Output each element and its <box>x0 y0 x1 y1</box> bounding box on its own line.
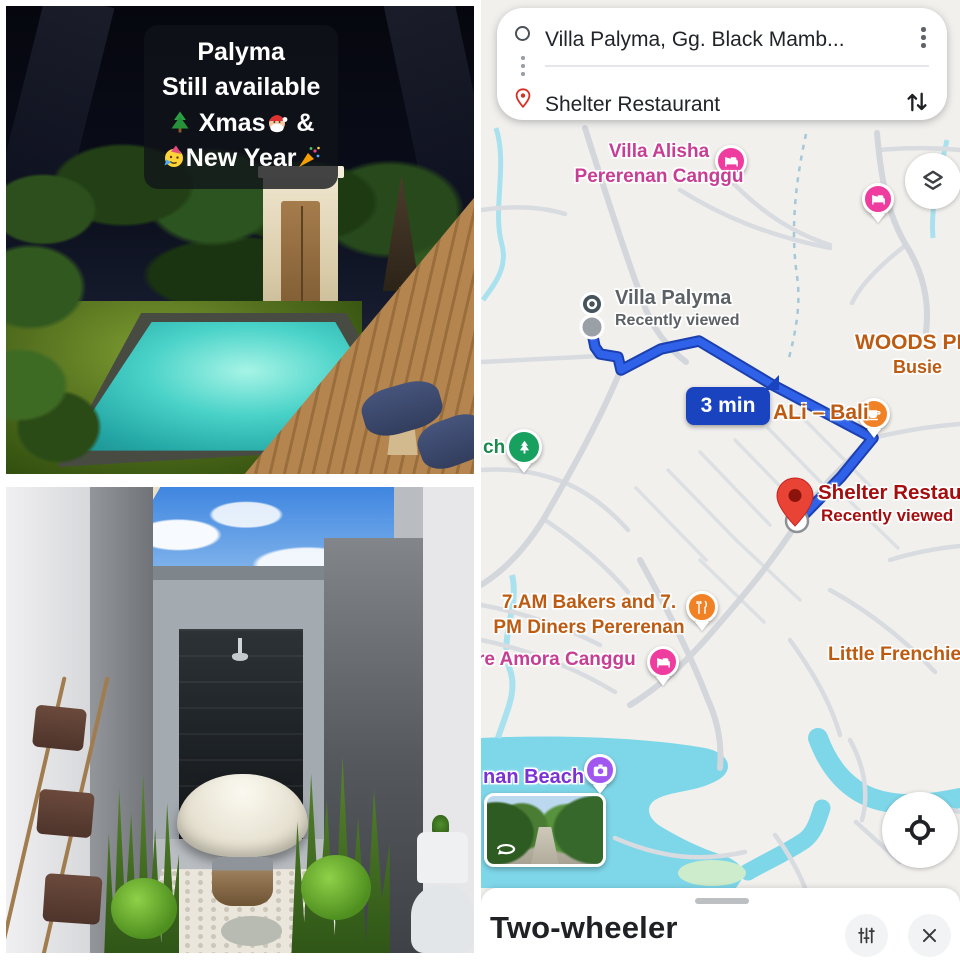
river <box>818 738 960 804</box>
destination-pin[interactable] <box>776 477 814 527</box>
label-villa-palyma[interactable]: Villa Palyma Recently viewed <box>615 287 740 330</box>
overlay-line3: Xmas & <box>148 106 334 142</box>
shower-head <box>232 638 249 666</box>
travel-mode-title: Two-wheeler <box>490 910 678 946</box>
camera-icon <box>592 762 609 779</box>
street-view-lane <box>531 827 559 864</box>
xmas-tree-icon <box>168 109 192 133</box>
origin-field[interactable]: Villa Palyma, Gg. Black Mamb... <box>545 28 845 52</box>
duration-text: 3 min <box>701 394 756 418</box>
boundary-dashed-line <box>789 134 806 358</box>
stepping-stone <box>221 916 282 946</box>
fork-knife-icon <box>694 599 711 616</box>
stone-stool <box>212 857 273 906</box>
bed-icon <box>655 654 672 671</box>
overlay-line2: Still available <box>148 70 334 106</box>
label-beach[interactable]: nan Beach <box>483 766 584 789</box>
villa-palyma-subtitle: Recently viewed <box>615 312 740 330</box>
my-location-button[interactable] <box>882 792 958 868</box>
bakers-line2: PM Diners Pererenan <box>483 615 695 640</box>
promo-text-overlay: Palyma Still available Xmas & New Year <box>144 25 338 189</box>
origin-circle-icon <box>515 26 530 41</box>
overlay-line3-amp: & <box>289 109 314 137</box>
tree-icon <box>516 439 533 456</box>
directions-card[interactable]: Villa Palyma, Gg. Black Mamb... Shelter … <box>497 8 947 120</box>
photo-spot-marker-beach[interactable] <box>584 754 616 786</box>
map-canvas[interactable] <box>481 0 960 888</box>
screenshot-collage: Palyma Still available Xmas & New Year <box>0 0 960 960</box>
swap-origin-destination-button[interactable] <box>903 88 931 116</box>
travel-mode-bottom-sheet[interactable]: Two-wheeler <box>481 888 960 960</box>
street-view-360-icon <box>494 841 518 857</box>
layers-icon <box>920 168 946 194</box>
label-woods[interactable]: WOODS PE <box>855 331 960 355</box>
lodging-marker-2[interactable] <box>862 183 894 215</box>
bamboo-towel-ladder <box>8 673 106 953</box>
label-woods-2[interactable]: Busie <box>893 357 942 378</box>
label-villa-alisha[interactable]: Villa Alisha Pererenan Canggu <box>539 139 779 189</box>
river-link <box>748 808 822 872</box>
pool-photo: Palyma Still available Xmas & New Year <box>6 6 474 474</box>
bush-left <box>111 878 177 939</box>
bed-icon <box>870 191 887 208</box>
park-patch <box>678 860 746 886</box>
close-directions-button[interactable] <box>908 914 951 957</box>
origin-ground-dot <box>581 316 603 338</box>
label-shelter-subtitle: Recently viewed <box>821 506 953 526</box>
overlay-line4-text: New Year <box>186 144 297 172</box>
overlay-line4: New Year <box>148 141 334 177</box>
sheet-drag-handle[interactable] <box>695 898 749 904</box>
close-icon <box>920 926 939 945</box>
google-maps-panel[interactable]: Villa Alisha Pererenan Canggu Villa Paly… <box>481 0 960 960</box>
overlay-line3-text: Xmas <box>199 109 266 137</box>
label-shelter-title[interactable]: Shelter Restaur <box>818 481 960 505</box>
towel <box>32 704 87 751</box>
toilet-tank <box>417 832 468 883</box>
locate-target-icon <box>903 813 937 847</box>
bathroom-photo <box>6 487 474 953</box>
route-options-button[interactable] <box>845 914 888 957</box>
party-popper-icon <box>297 144 321 168</box>
bakers-line1: 7.AM Bakers and 7. <box>483 590 695 615</box>
route-duration-badge[interactable]: 3 min <box>686 387 770 425</box>
toilet <box>411 832 474 953</box>
towel <box>36 789 95 838</box>
label-little-frenchie[interactable]: Little Frenchie <box>828 643 960 666</box>
park-marker[interactable] <box>506 429 542 465</box>
origin-marker[interactable] <box>582 294 603 315</box>
back-wall-cap <box>146 566 333 580</box>
towel <box>42 873 102 924</box>
villa-alisha-line1: Villa Alisha <box>539 139 779 164</box>
santa-icon <box>265 109 289 133</box>
tune-sliders-icon <box>856 925 877 946</box>
villa-palyma-title: Villa Palyma <box>615 287 740 310</box>
lodging-marker-amora[interactable] <box>647 646 679 678</box>
bush-right <box>301 855 371 920</box>
destination-pin-icon <box>512 87 534 109</box>
stream <box>483 128 503 300</box>
party-face-icon <box>162 144 186 168</box>
destination-field[interactable]: Shelter Restaurant <box>545 93 720 117</box>
label-ali-bali[interactable]: ALi – Bali <box>773 401 869 425</box>
foreground-plants <box>6 203 109 474</box>
map-layers-button[interactable] <box>905 153 960 209</box>
label-park-partial[interactable]: ch <box>483 437 505 459</box>
street-view-thumbnail[interactable] <box>484 793 606 867</box>
card-divider <box>545 65 929 67</box>
villa-alisha-line2: Pererenan Canggu <box>539 164 779 189</box>
overlay-line1: Palyma <box>148 35 334 71</box>
toilet-bowl <box>411 885 474 953</box>
label-bakers[interactable]: 7.AM Bakers and 7. PM Diners Pererenan <box>483 590 695 640</box>
label-amora[interactable]: re Amora Canggu <box>481 649 636 671</box>
